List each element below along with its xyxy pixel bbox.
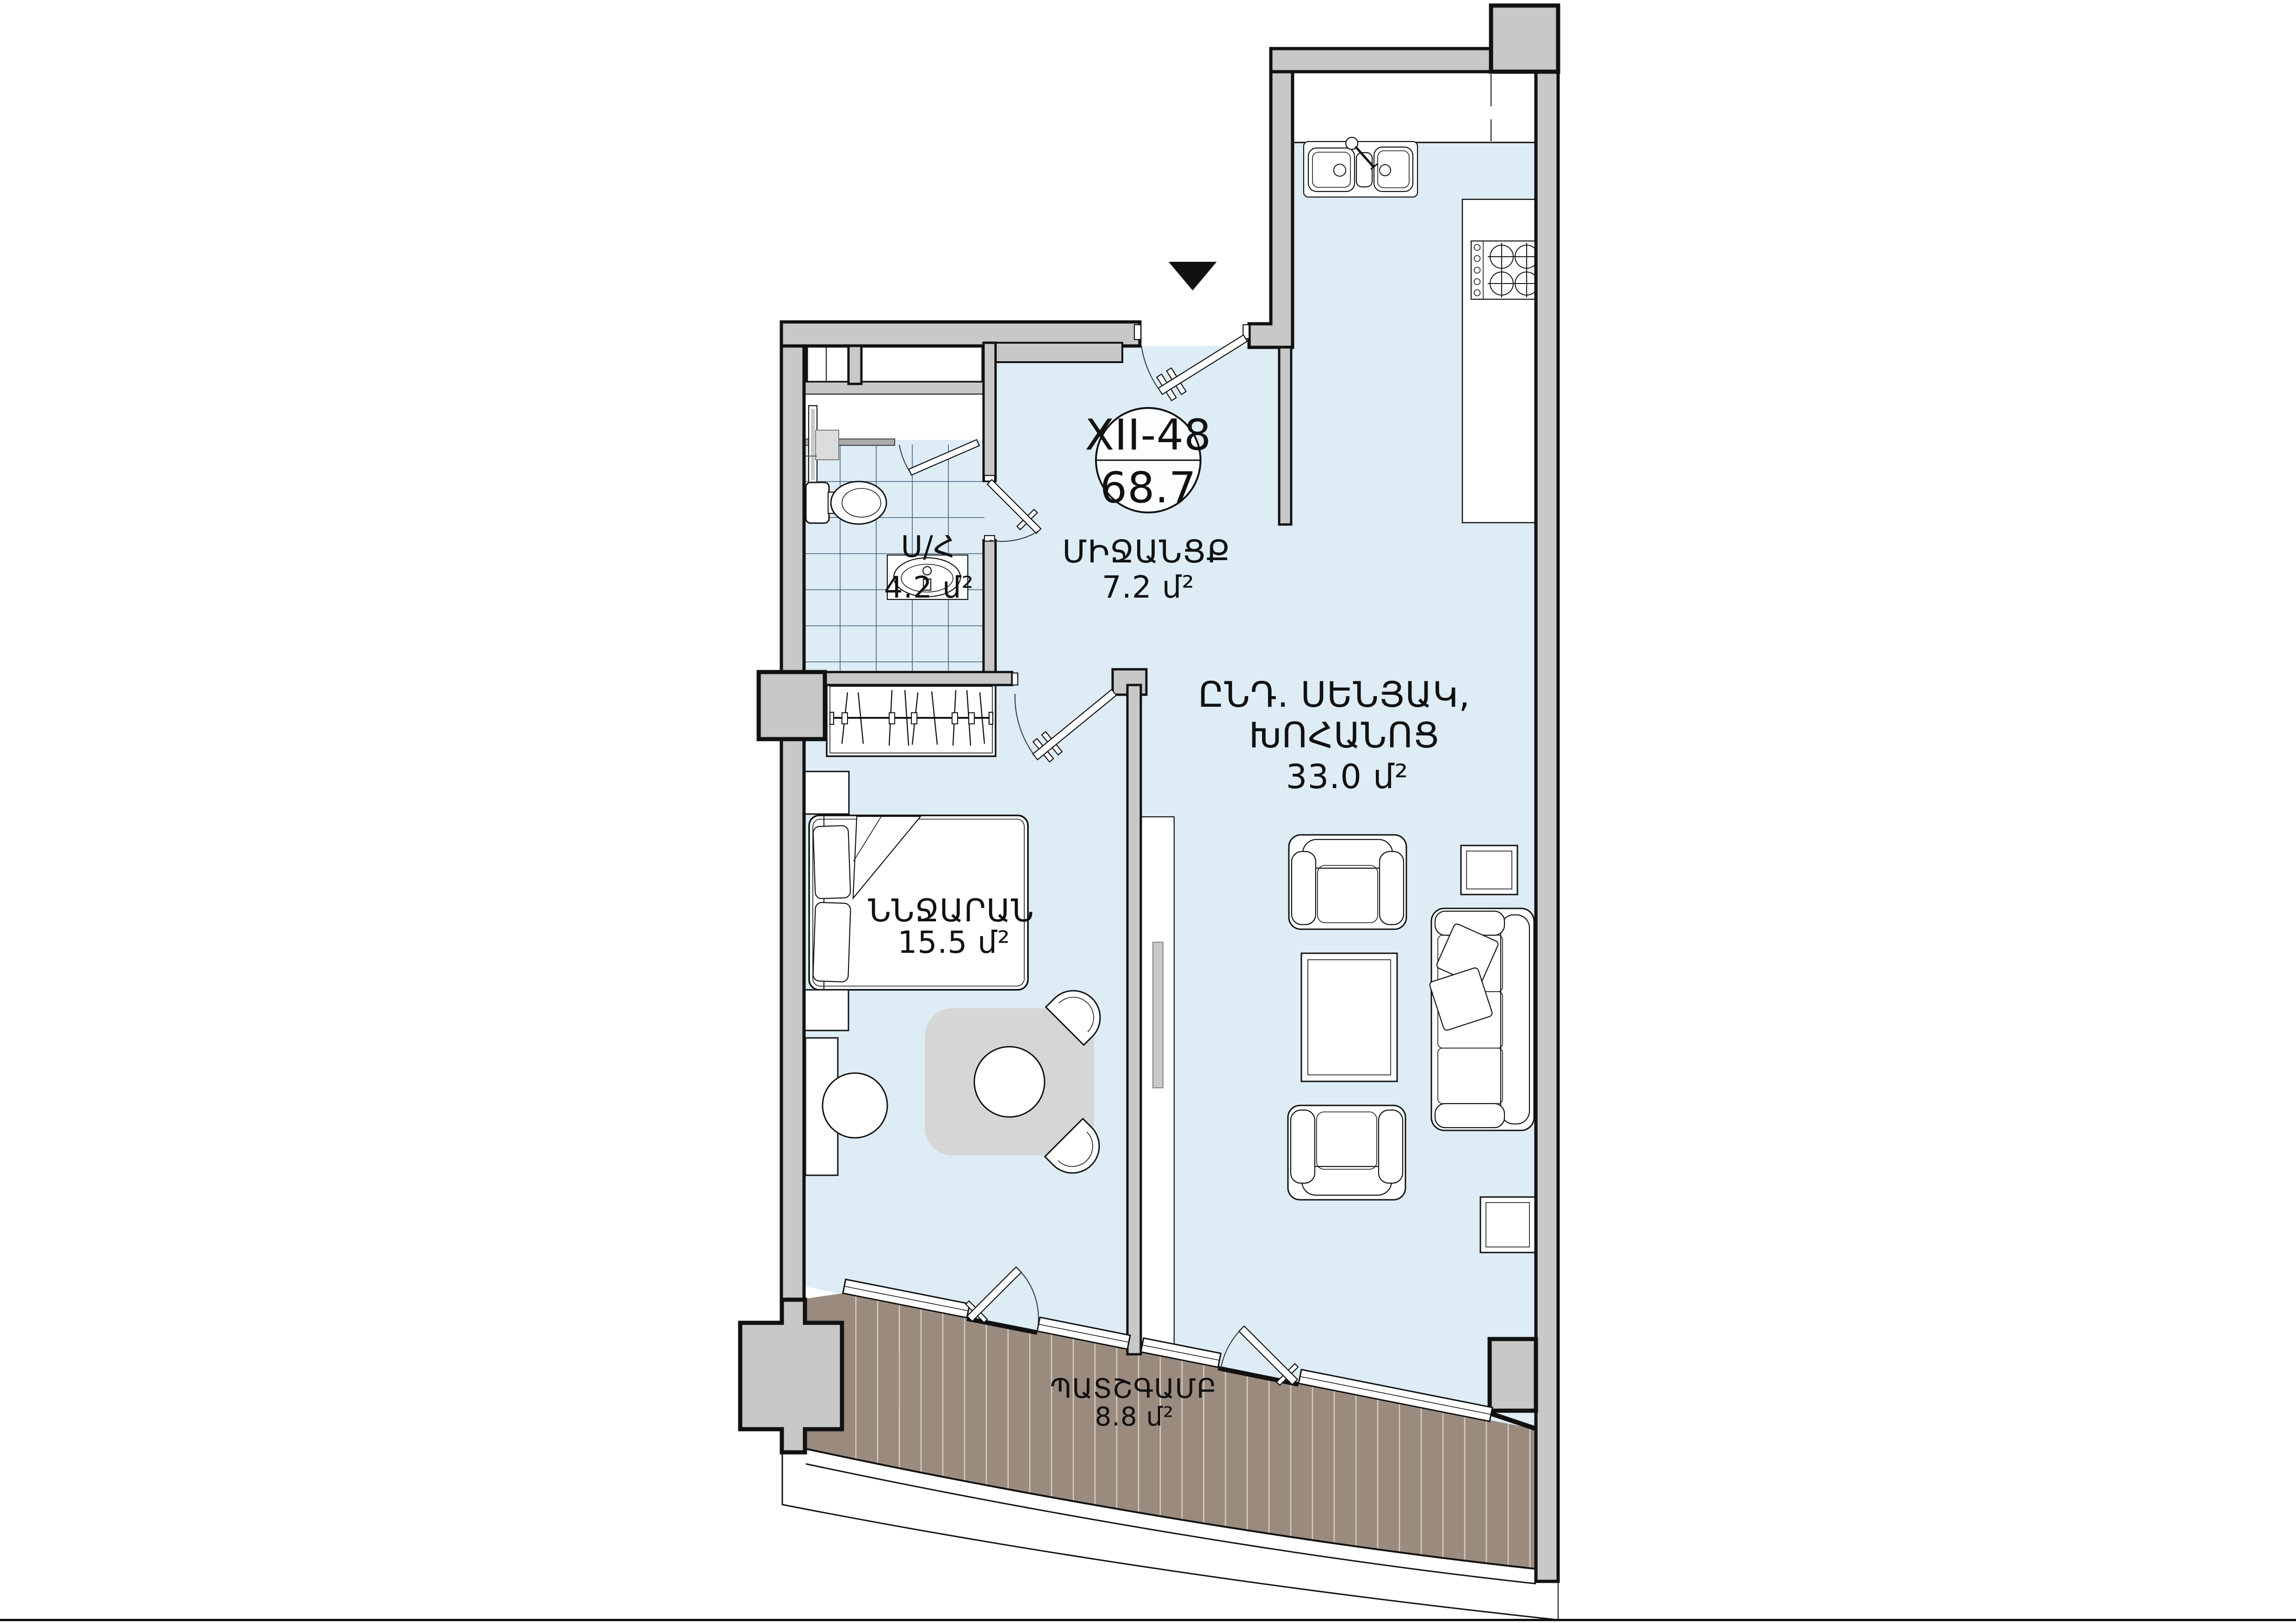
nightstand [805,771,849,814]
floor-plan-canvas: XII-48 68.7 ՄԻՋԱՆՑՔ 7.2 մ² Ս/Հ 4.2 մ² ԸՆ… [0,0,2296,1623]
pier-bottom-right [1490,1339,1536,1411]
round-table-icon [974,1047,1045,1117]
badge-total-area: 68.7 [1100,463,1197,512]
entrance-arrow-icon [1169,262,1217,290]
living-area: 33.0 մ² [1286,757,1409,796]
hallway-area: 7.2 մ² [1102,569,1194,605]
wall-hall-bedroom [825,672,1012,685]
pier-left-middle [759,672,825,739]
living-label-line1: ԸՆԴ. ՍԵՆՅԱԿ, [1198,674,1471,715]
wall-right [1536,72,1558,1581]
wall-kitchen-top [1271,49,1491,72]
wall-bath-right-lower [984,540,996,672]
wall-entry-L [1249,49,1293,347]
duct-box-large [861,346,983,382]
bathroom-label: Ս/Հ [901,530,955,564]
bedroom-label: ՆՆՋԱՐԱՆ [868,893,1034,929]
side-table-icon [1480,1197,1535,1253]
stove-icon [1471,241,1539,299]
duct-band [804,382,984,394]
floor-plan: XII-48 68.7 ՄԻՋԱՆՑՔ 7.2 մ² Ս/Հ 4.2 մ² ԸՆ… [0,0,2296,1623]
duct-box-small [807,346,849,382]
wardrobe-icon [827,683,996,756]
sheet-bottom-border [0,1619,2296,1621]
badge-unit-number: XII-48 [1085,410,1212,460]
wall-bath-duct-stub [848,346,861,384]
wall-left [781,322,804,1323]
bedroom-area: 15.5 մ² [897,925,1010,960]
armchair-icon [1289,835,1406,929]
living-label-line2: ԽՈՀԱՆՈՑ [1249,715,1440,756]
tv-screen [1153,942,1163,1088]
coffee-table-icon [1301,953,1397,1081]
side-table-icon [1461,845,1517,895]
unit-badge: XII-48 68.7 [1085,408,1212,512]
kitchen-sink-icon [1304,137,1417,197]
stool [823,1073,887,1138]
wall-bedroom-living-divider [1127,685,1141,1354]
wall-bath-right-upper [984,343,996,481]
bathroom-area: 4.2 մ² [884,571,974,605]
bench [803,990,848,1031]
toilet-icon [806,481,886,524]
sofa-icon [1429,908,1534,1130]
pier-top-right [1491,6,1558,72]
wall-hall-top-thick [984,343,1122,362]
hallway-label: ՄԻՋԱՆՑՔ [1062,534,1231,570]
balcony-area: 8.8 մ² [1095,1402,1174,1432]
wall-hall-kitchen-stub [1279,347,1291,525]
balcony-label: ՊԱՏՇԳԱՄԲ [1050,1373,1217,1404]
kitchen-counter-top [1293,72,1536,142]
pier-bottom-left [740,1300,842,1452]
armchair-icon [1288,1105,1405,1200]
